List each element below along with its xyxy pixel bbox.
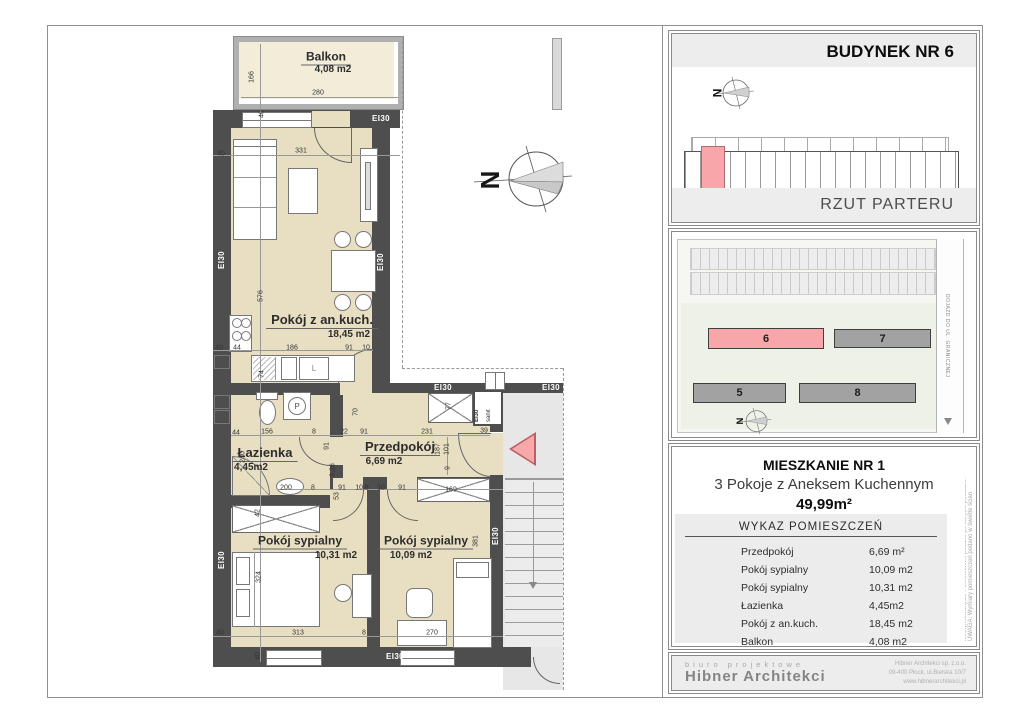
- dimension-label: 91: [338, 485, 346, 492]
- pillow: [456, 562, 489, 578]
- room-list-title: WYKAZ POMIESZCZEŃ: [675, 521, 947, 533]
- dimension-label: 53: [334, 492, 341, 500]
- room-area: 10,31 m2: [315, 551, 357, 561]
- sofa: [233, 146, 277, 240]
- plot-dashed-line: [402, 36, 403, 368]
- dimension-label: 331: [295, 148, 307, 155]
- stove-burner: [241, 318, 251, 328]
- dimension-label: 40: [216, 630, 224, 637]
- dimension-label: 156: [261, 429, 273, 436]
- bed-line: [254, 552, 255, 627]
- panel-site-plan: DOJAZD DO UL. GRANICZNEJ 6 7 5 8 N: [668, 228, 980, 441]
- stair-rail: [533, 482, 534, 582]
- parking-row: [690, 272, 936, 295]
- road-label: DOJAZD DO UL. GRANICZNEJ: [944, 294, 950, 414]
- wall-exit-stub: [503, 647, 531, 667]
- apartment-total-area: 49,99m²: [672, 496, 976, 513]
- site-building-5: 5: [693, 383, 786, 403]
- address-line: www.hibnerarchitekci.pl: [889, 678, 966, 687]
- dimension-label: 186: [286, 345, 298, 352]
- panel-footer: biuro projektowe Hibner Architekci Hibne…: [668, 652, 980, 694]
- apartment-title: MIESZKANIE NR 1: [672, 457, 976, 473]
- vent-box: [485, 372, 505, 390]
- north-letter: N: [734, 418, 745, 425]
- dimension-label: 200: [280, 485, 292, 492]
- building-title: BUDYNEK NR 6: [672, 34, 976, 67]
- dimension-label: 8: [362, 630, 366, 637]
- studio-name: Hibner Architekci: [685, 669, 826, 686]
- dimension-label: 40: [255, 652, 262, 660]
- studio-address: Hibner Architekci sp. z.o.o.09-400 Płock…: [889, 660, 976, 687]
- dimension-label: 44: [232, 430, 240, 437]
- room-list-area: 4,45m2: [869, 597, 947, 615]
- dimension-label: 231: [421, 429, 433, 436]
- dimension-label: 22: [340, 429, 348, 436]
- dimension-label: 74: [259, 370, 266, 378]
- dimension-label: 8,26: [330, 463, 337, 477]
- building-number: 8: [854, 387, 860, 399]
- site-building-6: 6: [708, 328, 824, 349]
- desk: [397, 620, 447, 646]
- apartment-subtitle: 3 Pokoje z Aneksem Kuchennym: [672, 476, 976, 493]
- room-list-row: Pokój sypialny10,31 m2: [675, 579, 947, 597]
- dimension-label: 91: [345, 345, 353, 352]
- room-name: Pokój sypialny: [253, 535, 347, 550]
- room-list-name: Balkon: [741, 633, 869, 647]
- dimension-label: 42: [255, 509, 262, 517]
- room-name: Pokój z an.kuch.: [266, 313, 378, 329]
- window-bedroom-1: [266, 650, 322, 666]
- staircase: [505, 478, 563, 647]
- fire-rating-label: EI30: [218, 251, 226, 269]
- panel-building-plan: BUDYNEK NR 6 N RZUT PARTERU: [668, 30, 980, 226]
- dimension-label: 187: [435, 443, 442, 455]
- dining-table: [331, 250, 376, 292]
- entrance-marker: [512, 435, 534, 463]
- dimension-label: 576: [258, 290, 265, 302]
- stove-burner: [241, 331, 251, 341]
- building-number: 5: [736, 387, 742, 399]
- access-road: [936, 239, 964, 433]
- room-area: 4,45m2: [234, 463, 268, 473]
- fire-rating-label: EI30: [542, 384, 560, 392]
- window-bedroom-2: [400, 650, 455, 666]
- north-letter: N: [475, 171, 505, 190]
- electric-box: [215, 411, 229, 423]
- highlighted-unit: [701, 146, 725, 194]
- doorway-entrance: [490, 433, 503, 475]
- dimension-label: 240: [240, 451, 247, 463]
- dimension-label: 77: [446, 402, 453, 410]
- road-arrow: [944, 418, 952, 425]
- dimension-label: 10: [377, 485, 385, 492]
- electric-box: [215, 396, 229, 408]
- room-list-area: 4,08 m2: [869, 633, 947, 647]
- room-list-row: Pokój sypialny10,09 m2: [675, 561, 947, 579]
- dimension-line: [213, 155, 400, 156]
- washer-drum: P: [288, 397, 306, 415]
- shaft-label-sanit: sanit: [486, 394, 492, 422]
- doorway-living-hall: [340, 384, 372, 395]
- coffee-table: [288, 168, 318, 214]
- fire-rating-label: EI30: [372, 115, 390, 123]
- dimension-label: 324: [256, 571, 263, 583]
- room-name: Pokój sypialny: [379, 535, 473, 550]
- dimension-label: 40: [259, 110, 266, 118]
- wall-left: [213, 110, 231, 667]
- architectural-sheet: N LPEI30sanitBalkon4,08 m2Pokój z an.kuc…: [0, 0, 1024, 724]
- dimension-label: 8: [312, 429, 316, 436]
- site-building-7: 7: [834, 329, 931, 348]
- room-list-row: Przedpokój6,69 m²: [675, 543, 947, 561]
- fire-rating-label: EI30: [434, 384, 452, 392]
- fire-rating-label: EI30: [218, 551, 226, 569]
- dimension-label: 280: [312, 90, 324, 97]
- room-list-row: Łazienka4,45m2: [675, 597, 947, 615]
- dimension-label: 381: [473, 535, 480, 547]
- room-list-row: Balkon4,08 m2: [675, 633, 947, 647]
- wall-bedroom-divider: [367, 490, 380, 647]
- plot-dashed-line: [402, 368, 563, 369]
- building-outline: [684, 151, 959, 189]
- building-balconies: [691, 137, 949, 151]
- neighbor-balcony-wall: [552, 38, 562, 110]
- bedside-table: [352, 574, 372, 618]
- studio-block: biuro projektowe Hibner Architekci: [672, 660, 826, 686]
- dimension-line: [260, 44, 261, 662]
- room-list-area: 10,31 m2: [869, 579, 947, 597]
- dimension-label: 313: [292, 630, 304, 637]
- north-compass-small: N: [708, 69, 756, 117]
- window-living: [242, 112, 312, 128]
- room-area: 6,69 m2: [366, 457, 403, 467]
- panel-apartment-info: MIESZKANIE NR 1 3 Pokoje z Aneksem Kuche…: [668, 443, 980, 650]
- site-green-area: [681, 303, 937, 429]
- dimension-line: [241, 97, 398, 98]
- shaft-label-fire: EI30: [474, 394, 480, 422]
- parking-row: [690, 248, 936, 270]
- dimension-line: [213, 636, 503, 637]
- pillow: [236, 557, 250, 585]
- dimension-label: 40: [215, 345, 223, 352]
- dimension-label: 91: [398, 485, 406, 492]
- address-line: Hibner Architekci sp. z.o.o.: [889, 660, 966, 669]
- north-compass: N: [458, 140, 576, 220]
- room-list-name: Łazienka: [741, 597, 869, 615]
- floor-plan: N LPEI30sanitBalkon4,08 m2Pokój z an.kuc…: [0, 0, 664, 724]
- room-list-area: 18,45 m2: [869, 615, 947, 633]
- address-line: 09-400 Płock, ul.Bielska 10/7: [889, 669, 966, 678]
- dimension-label: 70: [353, 408, 360, 416]
- dimension-label: 9: [445, 466, 452, 470]
- dimension-label: 8: [311, 485, 315, 492]
- chair: [334, 584, 352, 602]
- desk-chair: [406, 588, 433, 618]
- dimension-label: 44: [233, 345, 241, 352]
- room-list-area: 6,69 m²: [869, 543, 947, 561]
- site-building-8: 8: [799, 383, 916, 403]
- dimension-label: 10: [362, 345, 370, 352]
- stair-arrow: [529, 582, 537, 589]
- plot-dashed-line: [563, 368, 564, 690]
- dining-chair: [334, 231, 351, 248]
- disclaimer-note: UWAGA: Wymiary pomieszczeń podano w świe…: [965, 451, 974, 641]
- dimension-label: 40: [217, 151, 225, 158]
- building-number: 7: [879, 333, 885, 345]
- doorway-balcony: [312, 111, 350, 127]
- dimension-label: 169: [445, 487, 457, 494]
- dimension-label: 39: [480, 428, 488, 435]
- north-compass-site: N: [730, 402, 776, 438]
- dimension-label: 166: [249, 71, 256, 83]
- room-name: Przedpokój: [360, 440, 440, 456]
- room-list-area: 10,09 m2: [869, 561, 947, 579]
- dimension-label: 91: [360, 429, 368, 436]
- room-list: WYKAZ POMIESZCZEŃ Przedpokój6,69 m²Pokój…: [675, 514, 947, 643]
- building-plan-drawing: N: [672, 67, 976, 188]
- building-plan-caption: RZUT PARTERU: [672, 188, 976, 222]
- wall-hall-top: [379, 383, 563, 393]
- room-area: 4,08 m2: [315, 65, 352, 75]
- fire-rating-label: EI30: [492, 527, 500, 545]
- dining-chair: [355, 294, 372, 311]
- room-list-name: Pokój sypialny: [741, 579, 869, 597]
- room-area: 18,45 m2: [328, 330, 370, 340]
- dining-chair: [355, 231, 372, 248]
- electric-box: [215, 356, 229, 368]
- pillow: [236, 589, 250, 617]
- room-list-name: Pokój sypialny: [741, 561, 869, 579]
- sofa-armrest: [233, 139, 277, 147]
- room-area: 10,09 m2: [390, 551, 432, 561]
- fire-rating-label: EI30: [377, 253, 385, 271]
- fire-rating-label: EI30: [386, 653, 404, 661]
- kitchen-cabinet: [281, 357, 297, 380]
- room-list-name: Przedpokój: [741, 543, 869, 561]
- dimension-label: 270: [426, 630, 438, 637]
- tv-screen: [365, 162, 371, 210]
- room-list-rows: Przedpokój6,69 m²Pokój sypialny10,09 m2P…: [675, 543, 947, 647]
- toilet-bowl: [259, 400, 276, 425]
- room-list-row: Pokój z an.kuch.18,45 m2: [675, 615, 947, 633]
- room-list-name: Pokój z an.kuch.: [741, 615, 869, 633]
- dimension-label: 91: [324, 442, 331, 450]
- north-letter: N: [710, 89, 724, 98]
- room-list-rule: [685, 536, 937, 537]
- doorway-bathroom: [330, 437, 343, 465]
- building-number: 6: [763, 333, 769, 345]
- wardrobe: [232, 505, 320, 533]
- dimension-label: 101: [444, 443, 451, 455]
- kitchen-sink: L: [299, 357, 329, 380]
- dimension-label: 10,8: [355, 485, 369, 492]
- dining-chair: [334, 294, 351, 311]
